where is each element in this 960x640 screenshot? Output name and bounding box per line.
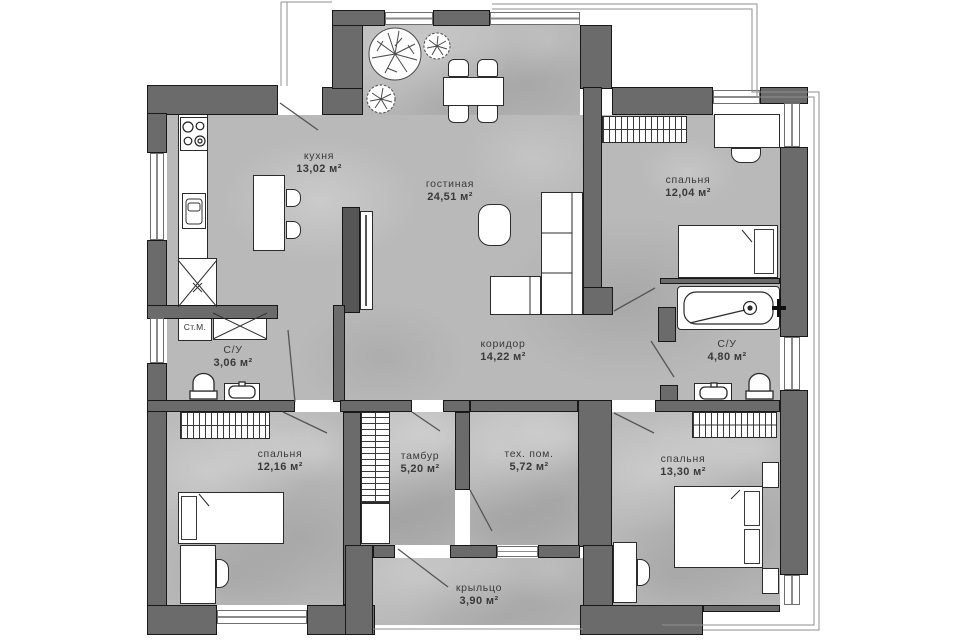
wall bbox=[780, 147, 808, 337]
tv-panel bbox=[360, 211, 373, 310]
room-name: С/У bbox=[213, 344, 252, 356]
stove bbox=[180, 117, 208, 151]
wall bbox=[443, 400, 470, 412]
wall bbox=[450, 545, 497, 558]
wall bbox=[340, 400, 412, 412]
room-name: С/У bbox=[707, 338, 746, 350]
wall bbox=[658, 307, 676, 342]
dining-chair bbox=[448, 59, 469, 77]
desk bbox=[613, 542, 637, 603]
room-area: 24,51 м² bbox=[426, 191, 474, 203]
wall bbox=[580, 25, 612, 89]
dining-table bbox=[443, 77, 504, 106]
wall bbox=[147, 113, 167, 153]
room-area: 14,22 м² bbox=[480, 351, 526, 363]
kitchen-cabinet bbox=[178, 258, 217, 308]
room-area: 5,20 м² bbox=[400, 463, 439, 475]
room-area: 12,04 м² bbox=[665, 187, 711, 199]
wall bbox=[583, 287, 613, 315]
wardrobe bbox=[180, 412, 270, 439]
room-label-tambour: тамбур 5,20 м² bbox=[400, 450, 439, 475]
room-name: спальня bbox=[665, 174, 711, 186]
room-label-bathroom-left: С/У 3,06 м² bbox=[213, 344, 252, 369]
washing-machine-label: Ст.М. bbox=[184, 322, 206, 332]
room-name: спальня bbox=[257, 448, 303, 460]
pillow bbox=[744, 491, 760, 526]
nightstand bbox=[762, 568, 779, 594]
window bbox=[385, 12, 433, 25]
room-name: тех. пом. bbox=[504, 448, 553, 460]
floor-plan: Ст.М. bbox=[0, 0, 960, 640]
wall bbox=[578, 400, 612, 547]
bar-stool bbox=[286, 221, 301, 239]
room-name: коридор bbox=[480, 338, 526, 350]
pillow bbox=[181, 496, 197, 540]
wall bbox=[333, 305, 345, 402]
wall bbox=[147, 85, 278, 115]
window bbox=[784, 575, 800, 605]
room-area: 13,02 м² bbox=[296, 163, 342, 175]
floor-tech-room bbox=[470, 412, 578, 545]
kitchen-sink bbox=[182, 193, 206, 229]
dining-chair bbox=[448, 105, 469, 123]
room-label-tech-room: тех. пом. 5,72 м² bbox=[504, 448, 553, 473]
room-area: 4,80 м² bbox=[707, 351, 746, 363]
wall-partition bbox=[660, 278, 780, 284]
room-label-corridor: коридор 14,22 м² bbox=[480, 338, 526, 363]
room-label-bedroom-right: спальня 13,30 м² bbox=[660, 453, 706, 478]
bar-stool bbox=[286, 189, 301, 207]
room-label-bathroom-right: С/У 4,80 м² bbox=[707, 338, 746, 363]
wall bbox=[322, 87, 363, 115]
wall bbox=[580, 605, 703, 635]
window bbox=[497, 546, 538, 557]
window bbox=[150, 318, 164, 363]
desk-chair bbox=[731, 148, 761, 163]
wardrobe bbox=[692, 412, 777, 438]
room-area: 13,30 м² bbox=[660, 466, 706, 478]
wardrobe bbox=[361, 412, 390, 503]
tv-unit bbox=[342, 207, 360, 313]
sofa bbox=[541, 192, 583, 315]
window bbox=[713, 90, 760, 104]
wall bbox=[147, 605, 217, 635]
sofa-ottoman bbox=[490, 276, 541, 315]
wall bbox=[760, 87, 808, 104]
room-label-porch: крыльцо 3,90 м² bbox=[456, 582, 502, 607]
room-area: 5,72 м² bbox=[504, 461, 553, 473]
room-area: 12,16 м² bbox=[257, 461, 303, 473]
dining-chair bbox=[477, 59, 498, 77]
wall bbox=[147, 400, 295, 412]
room-area: 3,06 м² bbox=[213, 357, 252, 369]
hall-cabinet bbox=[361, 503, 390, 544]
wall bbox=[655, 400, 780, 412]
window bbox=[784, 103, 800, 147]
pillow bbox=[754, 229, 774, 274]
wall-partition bbox=[703, 605, 780, 612]
wall bbox=[373, 545, 395, 558]
wardrobe bbox=[602, 116, 687, 143]
window bbox=[784, 337, 800, 390]
wall bbox=[345, 545, 373, 635]
wall bbox=[583, 87, 602, 289]
room-area: 3,90 м² bbox=[456, 595, 502, 607]
wall bbox=[470, 400, 578, 412]
room-label-bedroom-left: спальня 12,16 м² bbox=[257, 448, 303, 473]
wall bbox=[455, 412, 470, 490]
window bbox=[217, 610, 307, 624]
room-name: гостиная bbox=[426, 178, 474, 190]
bathtub bbox=[677, 286, 780, 330]
desk bbox=[714, 114, 780, 148]
nightstand bbox=[762, 462, 779, 488]
pillow bbox=[744, 529, 760, 564]
room-name: кухня bbox=[296, 150, 342, 162]
room-name: спальня bbox=[660, 453, 706, 465]
kitchen-island bbox=[253, 175, 285, 251]
room-name: крыльцо bbox=[456, 582, 502, 594]
coffee-table bbox=[478, 204, 511, 246]
desk bbox=[180, 545, 216, 604]
wall bbox=[332, 25, 363, 89]
wall bbox=[147, 305, 278, 319]
room-label-bedroom-top: спальня 12,04 м² bbox=[665, 174, 711, 199]
wall bbox=[780, 390, 808, 575]
desk-chair bbox=[216, 559, 229, 588]
room-label-living: гостиная 24,51 м² bbox=[426, 178, 474, 203]
room-name: тамбур bbox=[400, 450, 439, 462]
window bbox=[150, 153, 164, 240]
wall bbox=[612, 87, 713, 115]
wall bbox=[433, 10, 490, 26]
dining-chair bbox=[477, 105, 498, 123]
wall bbox=[538, 545, 580, 558]
window bbox=[490, 12, 580, 25]
room-label-kitchen: кухня 13,02 м² bbox=[296, 150, 342, 175]
wall bbox=[332, 10, 385, 26]
